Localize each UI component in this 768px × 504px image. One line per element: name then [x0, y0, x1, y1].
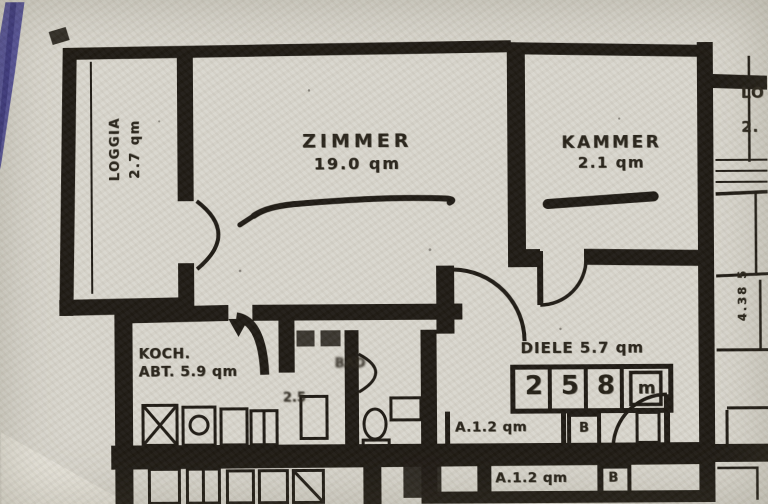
closet-cell-2: 5	[561, 371, 579, 401]
loggia-area: 2.7 qm	[125, 109, 145, 189]
room-label-zimmer: ZIMMER 19.0 qm	[267, 130, 447, 175]
floor-plan-labels: LOGGIA 2.7 qm ZIMMER 19.0 qm KAMMER 2.1 …	[0, 0, 768, 504]
koch-area: ABT. 5.9 qm	[139, 363, 238, 382]
diele-name: DIELE 5.7 qm	[521, 338, 645, 357]
neighbor-room-label: LO 2.	[741, 84, 765, 137]
kammer-area: 2.1 qm	[543, 153, 679, 173]
storage-label-1: A.1.2 qm	[455, 419, 527, 436]
dimension-right: 4.38 5	[735, 253, 750, 337]
room-label-bad: BAD	[335, 356, 366, 372]
storage-tag-2: B	[608, 471, 618, 487]
closet-cell-3: 8	[597, 371, 615, 401]
bad-area: 2.5	[283, 390, 306, 406]
closet-cell-4: m	[638, 378, 656, 398]
room-label-diele: DIELE 5.7 qm	[521, 338, 645, 358]
room-label-koch: KOCH. ABT. 5.9 qm	[139, 345, 238, 382]
loggia-name: LOGGIA	[106, 109, 126, 189]
zimmer-area: 19.0 qm	[267, 153, 447, 174]
bad-name: BAD	[335, 356, 366, 371]
room-label-loggia: LOGGIA 2.7 qm	[106, 109, 145, 189]
room-label-kammer: KAMMER 2.1 qm	[543, 132, 679, 173]
zimmer-name: ZIMMER	[267, 130, 447, 155]
koch-name: KOCH.	[139, 345, 238, 364]
scanned-floor-plan: LOGGIA 2.7 qm ZIMMER 19.0 qm KAMMER 2.1 …	[0, 0, 768, 504]
storage-tag-1: B	[579, 421, 589, 437]
kammer-name: KAMMER	[543, 132, 679, 154]
storage-label-2: A.1.2 qm	[495, 470, 567, 487]
closet-cell-1: 2	[525, 371, 543, 401]
